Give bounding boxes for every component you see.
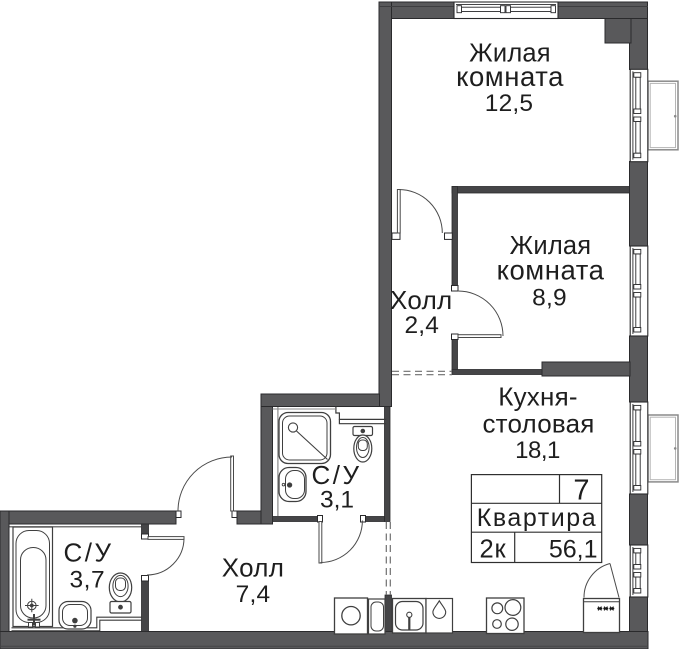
svg-text:2к: 2к bbox=[480, 535, 507, 563]
svg-text:Холл: Холл bbox=[390, 285, 452, 315]
svg-text:С/У: С/У bbox=[63, 538, 113, 568]
svg-text:Кухня-: Кухня- bbox=[498, 381, 577, 411]
svg-text:7: 7 bbox=[573, 475, 589, 507]
svg-text:Квартира: Квартира bbox=[477, 504, 597, 532]
svg-text:2,4: 2,4 bbox=[404, 312, 439, 339]
svg-text:12,5: 12,5 bbox=[485, 90, 533, 117]
svg-text:Холл: Холл bbox=[222, 552, 284, 582]
svg-text:комната: комната bbox=[456, 61, 564, 92]
svg-text:3,1: 3,1 bbox=[320, 486, 354, 513]
svg-text:3,7: 3,7 bbox=[70, 567, 106, 594]
svg-text:18,1: 18,1 bbox=[515, 437, 560, 464]
svg-text:столовая: столовая bbox=[482, 409, 594, 439]
svg-text:комната: комната bbox=[497, 255, 605, 286]
svg-text:56,1: 56,1 bbox=[549, 536, 598, 564]
svg-text:7,4: 7,4 bbox=[236, 581, 271, 608]
svg-text:8,9: 8,9 bbox=[532, 285, 567, 312]
